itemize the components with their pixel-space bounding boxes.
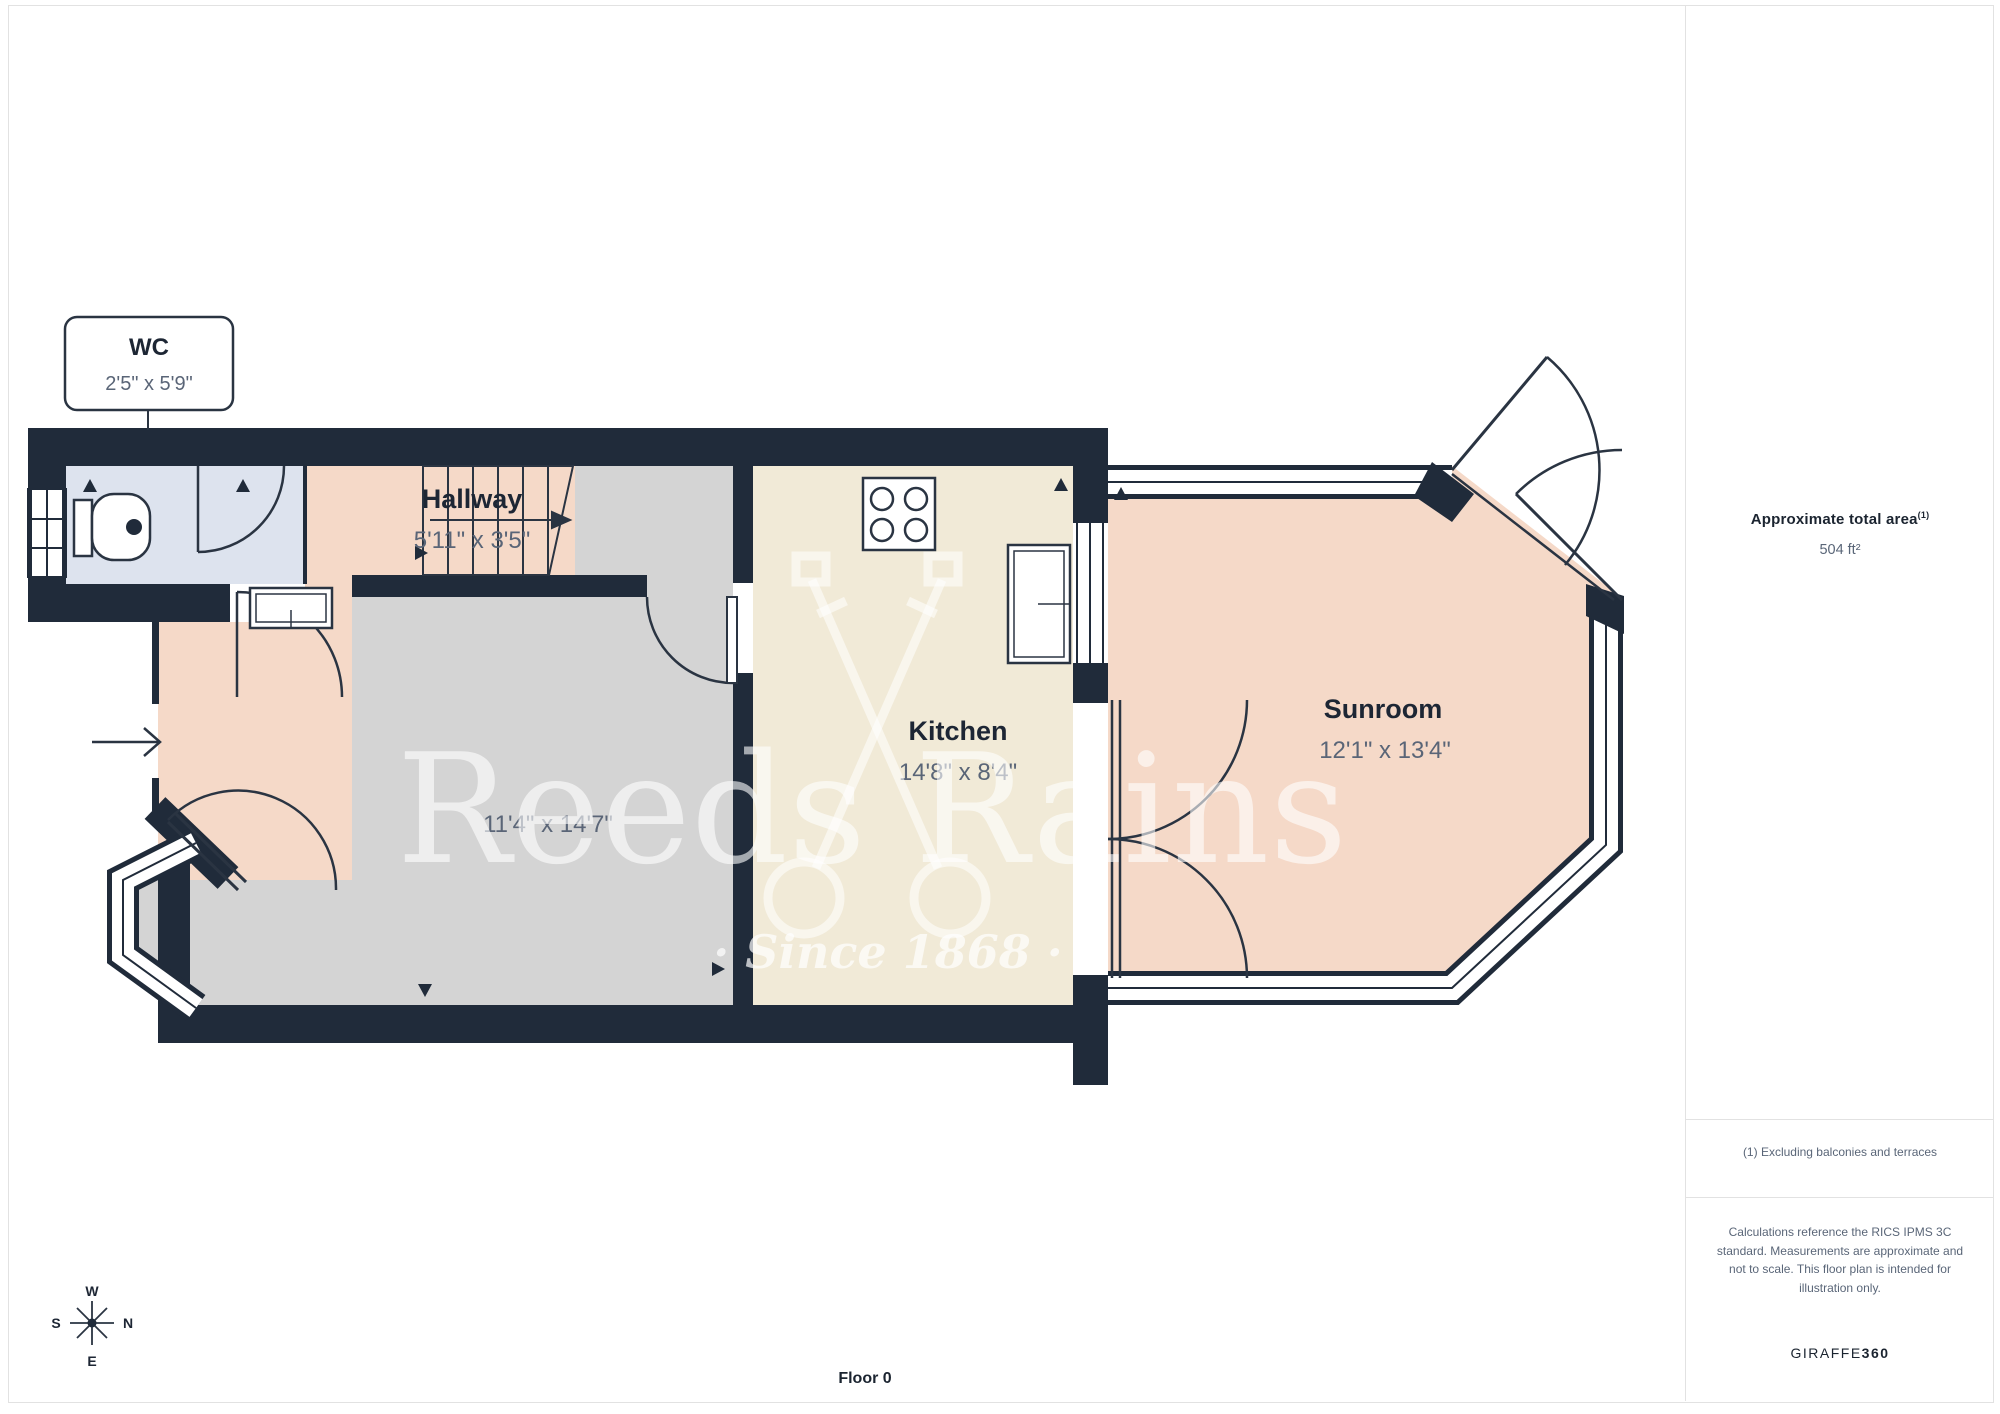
giraffe360-logo-bold: 360: [1862, 1345, 1890, 1361]
wc-window: [32, 488, 62, 578]
hallway-dims: 5'11" x 3'5": [414, 527, 531, 554]
compass-north: N: [123, 1315, 133, 1331]
wc-callout: WC 2'5" x 5'9": [65, 317, 233, 430]
kitchen-sunroom-window: [1077, 523, 1103, 663]
disclaimer-text: Calculations reference the RICS IPMS 3C …: [1710, 1223, 1970, 1297]
area-footnote: (1) Excluding balconies and terraces: [1686, 1145, 1994, 1159]
total-area-superscript: (1): [1918, 510, 1930, 520]
giraffe360-logo-normal: GIRAFFE: [1790, 1345, 1861, 1361]
total-area-value: 504 ft²: [1686, 542, 1994, 558]
hob: [863, 478, 935, 550]
hallway-label: Hallway: [422, 484, 523, 514]
compass-south: S: [51, 1315, 60, 1331]
wc-callout-dims: 2'5" x 5'9": [105, 373, 192, 395]
total-area-block: Approximate total area(1) 504 ft²: [1686, 510, 1994, 558]
giraffe360-logo: GIRAFFE360: [1686, 1345, 1994, 1361]
watermark-brand: Reeds Rains: [396, 721, 1347, 898]
french-door-arc-2: [1516, 450, 1622, 494]
compass-west: W: [85, 1283, 99, 1299]
compass-east: E: [87, 1353, 96, 1369]
sunroom-label: Sunroom: [1324, 694, 1443, 724]
watermark-tagline: · Since 1868 ·: [713, 925, 1063, 979]
info-sidebar: Approximate total area(1) 504 ft² (1) Ex…: [1685, 5, 1994, 1401]
total-area-title-text: Approximate total area: [1751, 511, 1918, 528]
compass: W E S N: [51, 1283, 133, 1369]
toilet: [74, 494, 150, 560]
counter: [1008, 545, 1070, 663]
total-area-title: Approximate total area(1): [1686, 510, 1994, 528]
floorplan-page: WC 2'5" x 5'9" Hallway 5'11" x 3'5" 11'4…: [0, 0, 2000, 1414]
sidebar-divider: [1686, 1119, 1994, 1120]
entry-arrow-icon: [92, 728, 160, 756]
sink: [250, 588, 332, 628]
sidebar-divider: [1686, 1197, 1994, 1198]
wc-callout-name: WC: [129, 334, 169, 361]
floor-label: Floor 0: [770, 1370, 960, 1388]
